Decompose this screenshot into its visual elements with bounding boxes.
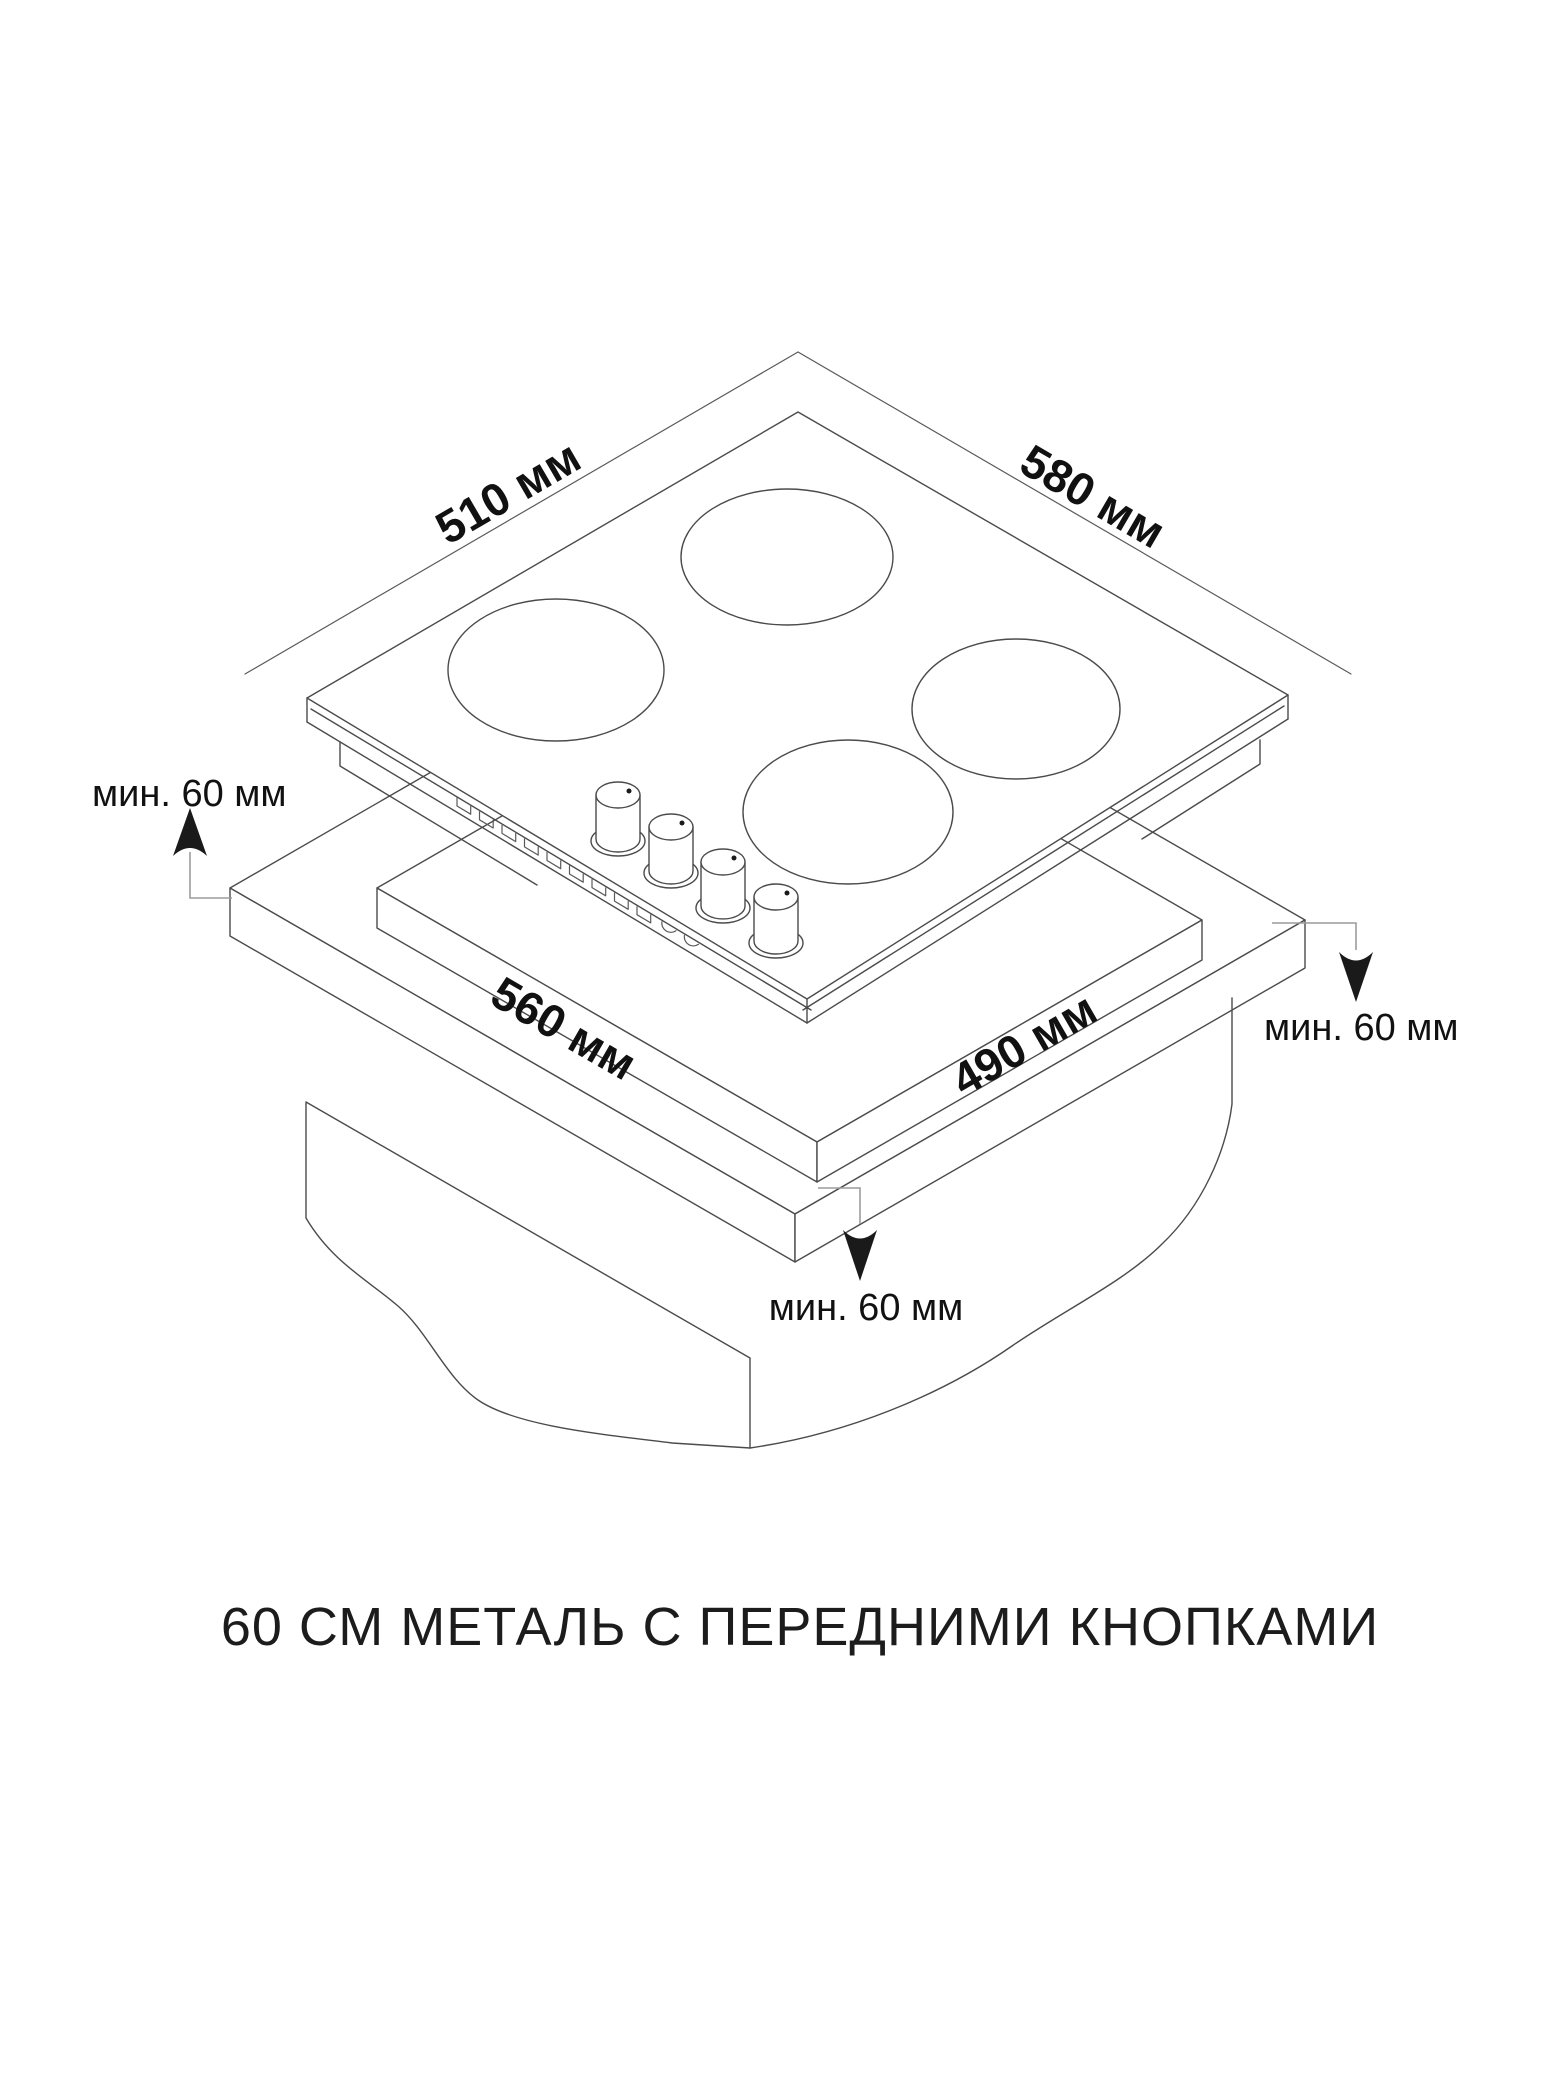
arrow-down-right [1339,952,1373,1002]
knob-2 [644,814,698,888]
knob-1 [591,782,645,856]
knob-marker-dot [680,821,685,826]
arrow-down-front [843,1230,877,1281]
installation-diagram-page: 510 мм 580 мм 560 мм 490 мм мин. 60 мм м… [0,0,1560,2080]
hob-installation-drawing: 510 мм 580 мм 560 мм 490 мм мин. 60 мм м… [0,0,1560,2080]
clearance-front-label: мин. 60 мм [769,1287,964,1329]
knob-marker-dot [785,891,790,896]
knob-marker-dot [732,856,737,861]
clearance-right-label: мин. 60 мм [1264,1007,1459,1049]
clearance-back-label: мин. 60 мм [92,773,287,815]
knob-marker-dot [627,789,632,794]
diagram-caption: 60 СМ МЕТАЛЬ С ПЕРЕДНИМИ КНОПКАМИ [221,1597,1379,1657]
leader-back [190,852,232,898]
knob-4 [749,884,803,958]
hob-depth-label: 510 мм [427,430,589,554]
knob-3 [696,849,750,923]
hob-width-label: 580 мм [1012,434,1174,558]
arrow-up-back [173,808,207,856]
